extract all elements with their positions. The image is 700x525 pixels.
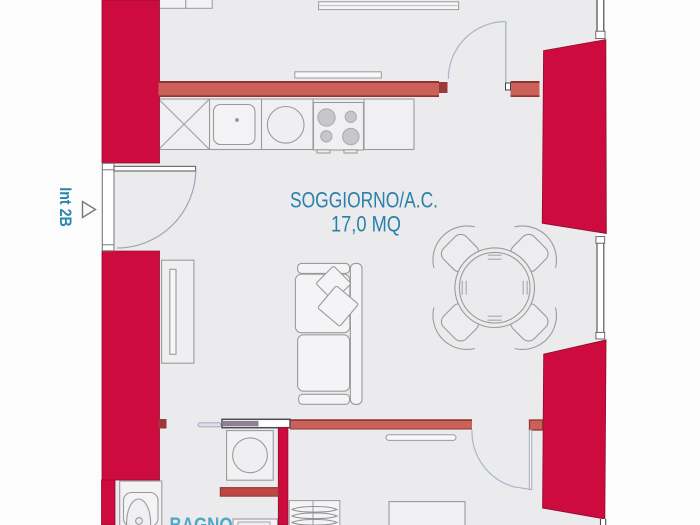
svg-text:SOGGIORNO/A.C.: SOGGIORNO/A.C. [290, 188, 438, 213]
svg-text:17,0 MQ: 17,0 MQ [331, 212, 401, 237]
svg-text:BAGNO: BAGNO [170, 514, 233, 525]
svg-text:Int 2B: Int 2B [56, 187, 75, 227]
